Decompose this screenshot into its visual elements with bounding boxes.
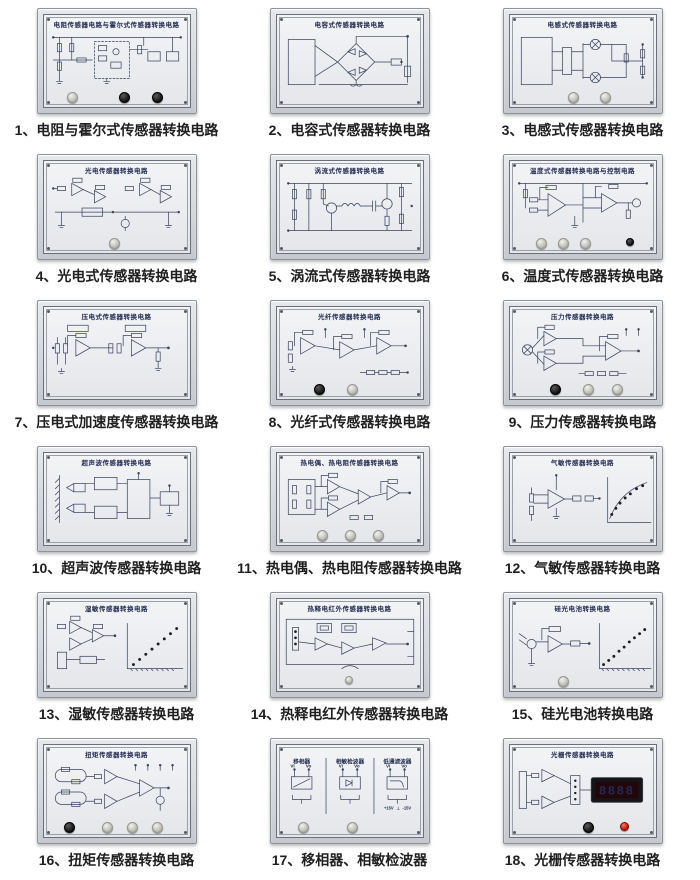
module-2-board: 电容式传感器转换电路 <box>270 8 430 114</box>
gnd-label: ⊥ <box>396 806 400 811</box>
circuit-schematic <box>511 176 655 238</box>
screw-icon <box>513 748 516 751</box>
panel-title: 光纤传感器转换电路 <box>277 311 423 321</box>
screw-icon <box>650 602 653 605</box>
module-6: 温度式传感器转换电路与控制电路 <box>466 146 699 292</box>
screw-icon <box>47 539 50 542</box>
module-8-panel: 光纤传感器转换电路 <box>276 306 424 400</box>
module-1-board: 电阻传感器电路与霍尔式传感器转换电路 <box>37 8 197 114</box>
module-17: 移相器 相敏检波器 低通滤波器 Vi Vo Vi Vo Vi Vo +15V ⊥… <box>233 730 466 876</box>
circuit-schematic <box>511 322 655 384</box>
screw-icon <box>184 164 187 167</box>
screw-icon <box>513 164 516 167</box>
module-5: 涡流式传感器转换电路 <box>233 146 466 292</box>
module-11-board: 热电偶、热电阻传感器转换电路 <box>270 446 430 552</box>
panel-title: 超声波传感器转换电路 <box>44 457 190 467</box>
module-8-board: 光纤传感器转换电路 <box>270 300 430 406</box>
screw-icon <box>650 456 653 459</box>
panel-title: 温度式传感器转换电路与控制电路 <box>510 165 656 175</box>
module-caption: 1、电阻与霍尔式传感器转换电路 <box>15 120 219 140</box>
knob[interactable] <box>298 822 309 833</box>
module-17-board: 移相器 相敏检波器 低通滤波器 Vi Vo Vi Vo Vi Vo +15V ⊥… <box>270 738 430 844</box>
screw-icon <box>650 18 653 21</box>
circuit-schematic <box>45 30 189 92</box>
module-16-board: 扭矩传感器转换电路 <box>37 738 197 844</box>
module-4-board: 光电传感器转换电路 <box>37 154 197 260</box>
module-10-panel: 超声波传感器转换电路 <box>43 452 191 546</box>
circuit-schematic <box>45 176 189 238</box>
module-caption: 8、光纤式传感器转换电路 <box>269 412 431 432</box>
module-14-panel: 热释电红外传感器转换电路 <box>276 598 424 692</box>
knob[interactable] <box>558 238 569 249</box>
vo-label: Vo <box>401 763 407 768</box>
module-5-board: 涡流式传感器转换电路 <box>270 154 430 260</box>
module-caption: 13、湿敏传感器转换电路 <box>39 704 195 724</box>
module-10-board: 超声波传感器转换电路 <box>37 446 197 552</box>
module-caption: 9、压力传感器转换电路 <box>509 412 657 432</box>
screw-icon <box>513 310 516 313</box>
panel-title: 扭矩传感器转换电路 <box>44 749 190 759</box>
knob[interactable] <box>345 676 353 684</box>
screw-icon <box>417 310 420 313</box>
module-7-board: 压电式传感器转换电路 <box>37 300 197 406</box>
module-7-panel: 压电式传感器转换电路 <box>43 306 191 400</box>
vi-label: Vi <box>290 763 294 768</box>
circuit-schematic <box>45 468 189 530</box>
screw-icon <box>184 748 187 751</box>
vi-label: Vi <box>338 763 342 768</box>
panel-title: 电容式传感器转换电路 <box>277 19 423 29</box>
module-6-panel: 温度式传感器转换电路与控制电路 <box>509 160 657 254</box>
screw-icon <box>47 393 50 396</box>
knob[interactable] <box>347 384 358 395</box>
circuit-schematic <box>278 30 422 92</box>
screw-icon <box>280 164 283 167</box>
module-caption: 15、硅光电池转换电路 <box>512 704 654 724</box>
screw-icon <box>513 456 516 459</box>
panel-title: 压力传感器转换电路 <box>510 311 656 321</box>
module-caption: 14、热释电红外传感器转换电路 <box>251 704 449 724</box>
screw-icon <box>184 685 187 688</box>
screw-icon <box>184 18 187 21</box>
module-12: 气敏传感器转换电路 <box>466 438 699 584</box>
screw-icon <box>280 602 283 605</box>
circuit-schematic <box>45 322 189 384</box>
panel-title: 电阻传感器电路与霍尔式传感器转换电路 <box>44 19 190 29</box>
module-15-panel: 硅光电池转换电路 <box>509 598 657 692</box>
screw-icon <box>47 310 50 313</box>
module-grid: 电阻传感器电路与霍尔式传感器转换电路 <box>0 0 700 876</box>
module-caption: 18、光栅传感器转换电路 <box>505 850 661 870</box>
module-3-board: 电感式传感器转换电路 <box>503 8 663 114</box>
knob[interactable] <box>119 92 130 103</box>
knob[interactable] <box>373 530 384 541</box>
vo-label: Vo <box>305 763 311 768</box>
module-14-board: 热释电红外传感器转换电路 <box>270 592 430 698</box>
knob[interactable] <box>347 822 358 833</box>
module-2: 电容式传感器转换电路 <box>233 0 466 146</box>
circuit-schematic <box>278 468 422 530</box>
screw-icon <box>280 310 283 313</box>
screw-icon <box>47 602 50 605</box>
module-4-panel: 光电传感器转换电路 <box>43 160 191 254</box>
module-15: 硅光电池转换电路 <box>466 584 699 730</box>
knob[interactable] <box>583 822 594 833</box>
screw-icon <box>280 748 283 751</box>
screw-icon <box>513 602 516 605</box>
knob[interactable] <box>127 822 138 833</box>
knob[interactable] <box>583 384 594 395</box>
module-caption: 2、电容式传感器转换电路 <box>269 120 431 140</box>
module-9-panel: 压力传感器转换电路 <box>509 306 657 400</box>
module-caption: 6、温度式传感器转换电路 <box>502 266 664 286</box>
display-digits: 8888 <box>599 784 635 798</box>
module-14: 热释电红外传感器转换电路 <box>233 584 466 730</box>
screw-icon <box>650 539 653 542</box>
module-caption: 5、涡流式传感器转换电路 <box>269 266 431 286</box>
module-12-board: 气敏传感器转换电路 <box>503 446 663 552</box>
knob[interactable] <box>536 238 547 249</box>
screw-icon <box>417 164 420 167</box>
screw-icon <box>513 18 516 21</box>
knob[interactable] <box>612 384 623 395</box>
module-9: 压力传感器转换电路 <box>466 292 699 438</box>
module-12-panel: 气敏传感器转换电路 <box>509 452 657 546</box>
vo-label: Vo <box>354 763 360 768</box>
screw-icon <box>184 539 187 542</box>
module-18: 光栅传感器转换电路 8888 <box>466 730 699 876</box>
knob[interactable] <box>314 384 325 395</box>
knob[interactable] <box>102 822 113 833</box>
module-caption: 11、热电偶、热电阻传感器转换电路 <box>237 558 462 578</box>
knob[interactable] <box>317 530 328 541</box>
toggle-switch[interactable] <box>626 238 634 246</box>
panel-title: 光电传感器转换电路 <box>44 165 190 175</box>
screw-icon <box>650 164 653 167</box>
screw-icon <box>650 310 653 313</box>
screw-icon <box>417 101 420 104</box>
screw-icon <box>417 748 420 751</box>
module-1: 电阻传感器电路与霍尔式传感器转换电路 <box>0 0 233 146</box>
module-17-panel: 移相器 相敏检波器 低通滤波器 Vi Vo Vi Vo Vi Vo +15V ⊥… <box>276 744 424 838</box>
circuit-schematic <box>511 614 655 676</box>
module-18-panel: 光栅传感器转换电路 8888 <box>509 744 657 838</box>
knob[interactable] <box>64 822 75 833</box>
module-6-board: 温度式传感器转换电路与控制电路 <box>503 154 663 260</box>
knob[interactable] <box>600 92 611 103</box>
knob[interactable] <box>550 384 561 395</box>
knob[interactable] <box>568 92 579 103</box>
screw-icon <box>47 18 50 21</box>
screw-icon <box>280 456 283 459</box>
panel-title: 光栅传感器转换电路 <box>510 749 656 759</box>
panel-title: 涡流式传感器转换电路 <box>277 165 423 175</box>
screw-icon <box>184 393 187 396</box>
module-caption: 12、气敏传感器转换电路 <box>505 558 661 578</box>
screw-icon <box>47 456 50 459</box>
module-3-panel: 电感式传感器转换电路 <box>509 14 657 108</box>
module-5-panel: 涡流式传感器转换电路 <box>276 160 424 254</box>
module-13-panel: 湿敏传感器转换电路 <box>43 598 191 692</box>
neg-supply-label: -15V <box>402 806 411 811</box>
circuit-schematic <box>278 614 422 676</box>
screw-icon <box>417 602 420 605</box>
circuit-schematic <box>511 30 655 92</box>
screw-icon <box>280 18 283 21</box>
screw-icon <box>184 602 187 605</box>
circuit-schematic <box>278 176 422 238</box>
panel-title: 气敏传感器转换电路 <box>510 457 656 467</box>
module-15-board: 硅光电池转换电路 <box>503 592 663 698</box>
panel-title: 热电偶、热电阻传感器转换电路 <box>277 457 423 467</box>
module-caption: 3、电感式传感器转换电路 <box>502 120 664 140</box>
panel-title: 湿敏传感器转换电路 <box>44 603 190 613</box>
screw-icon <box>280 247 283 250</box>
circuit-schematic: 8888 <box>511 760 655 822</box>
pos-supply-label: +15V <box>383 806 393 811</box>
module-10: 超声波传感器转换电路 <box>0 438 233 584</box>
knob[interactable] <box>345 530 356 541</box>
screw-icon <box>417 456 420 459</box>
screw-icon <box>184 456 187 459</box>
module-3: 电感式传感器转换电路 <box>466 0 699 146</box>
module-11: 热电偶、热电阻传感器转换电路 <box>233 438 466 584</box>
module-7: 压电式传感器转换电路 <box>0 292 233 438</box>
module-18-board: 光栅传感器转换电路 8888 <box>503 738 663 844</box>
power-button[interactable] <box>620 822 629 831</box>
screw-icon <box>650 748 653 751</box>
knob[interactable] <box>109 238 120 249</box>
module-13: 湿敏传感器转换电路 <box>0 584 233 730</box>
knob[interactable] <box>67 92 78 103</box>
knob[interactable] <box>152 822 163 833</box>
screw-icon <box>47 164 50 167</box>
panel-title: 电感式传感器转换电路 <box>510 19 656 29</box>
knob[interactable] <box>580 238 591 249</box>
module-1-panel: 电阻传感器电路与霍尔式传感器转换电路 <box>43 14 191 108</box>
module-16: 扭矩传感器转换电路 <box>0 730 233 876</box>
module-13-board: 湿敏传感器转换电路 <box>37 592 197 698</box>
circuit-schematic <box>45 614 189 676</box>
circuit-schematic <box>511 468 655 530</box>
circuit-schematic <box>45 760 189 822</box>
screw-icon <box>513 539 516 542</box>
panel-title: 压电式传感器转换电路 <box>44 311 190 321</box>
module-8: 光纤传感器转换电路 <box>233 292 466 438</box>
vi-label: Vi <box>386 763 390 768</box>
knob[interactable] <box>152 92 163 103</box>
module-caption: 4、光电式传感器转换电路 <box>36 266 198 286</box>
module-11-panel: 热电偶、热电阻传感器转换电路 <box>276 452 424 546</box>
screw-icon <box>47 748 50 751</box>
screw-icon <box>47 685 50 688</box>
panel-title: 硅光电池转换电路 <box>510 603 656 613</box>
screw-icon <box>184 310 187 313</box>
knob[interactable] <box>558 676 569 687</box>
module-16-panel: 扭矩传感器转换电路 <box>43 744 191 838</box>
screw-icon <box>280 101 283 104</box>
module-caption: 16、扭矩传感器转换电路 <box>39 850 195 870</box>
screw-icon <box>417 247 420 250</box>
module-caption: 17、移相器、相敏检波器 <box>272 850 428 870</box>
circuit-schematic: 移相器 相敏检波器 低通滤波器 Vi Vo Vi Vo Vi Vo +15V ⊥… <box>278 748 422 824</box>
module-caption: 10、超声波传感器转换电路 <box>32 558 202 578</box>
module-9-board: 压力传感器转换电路 <box>503 300 663 406</box>
circuit-schematic <box>278 322 422 384</box>
module-4: 光电传感器转换电路 <box>0 146 233 292</box>
module-2-panel: 电容式传感器转换电路 <box>276 14 424 108</box>
screw-icon <box>417 18 420 21</box>
module-caption: 7、压电式加速度传感器转换电路 <box>15 412 219 432</box>
panel-title: 热释电红外传感器转换电路 <box>277 603 423 613</box>
